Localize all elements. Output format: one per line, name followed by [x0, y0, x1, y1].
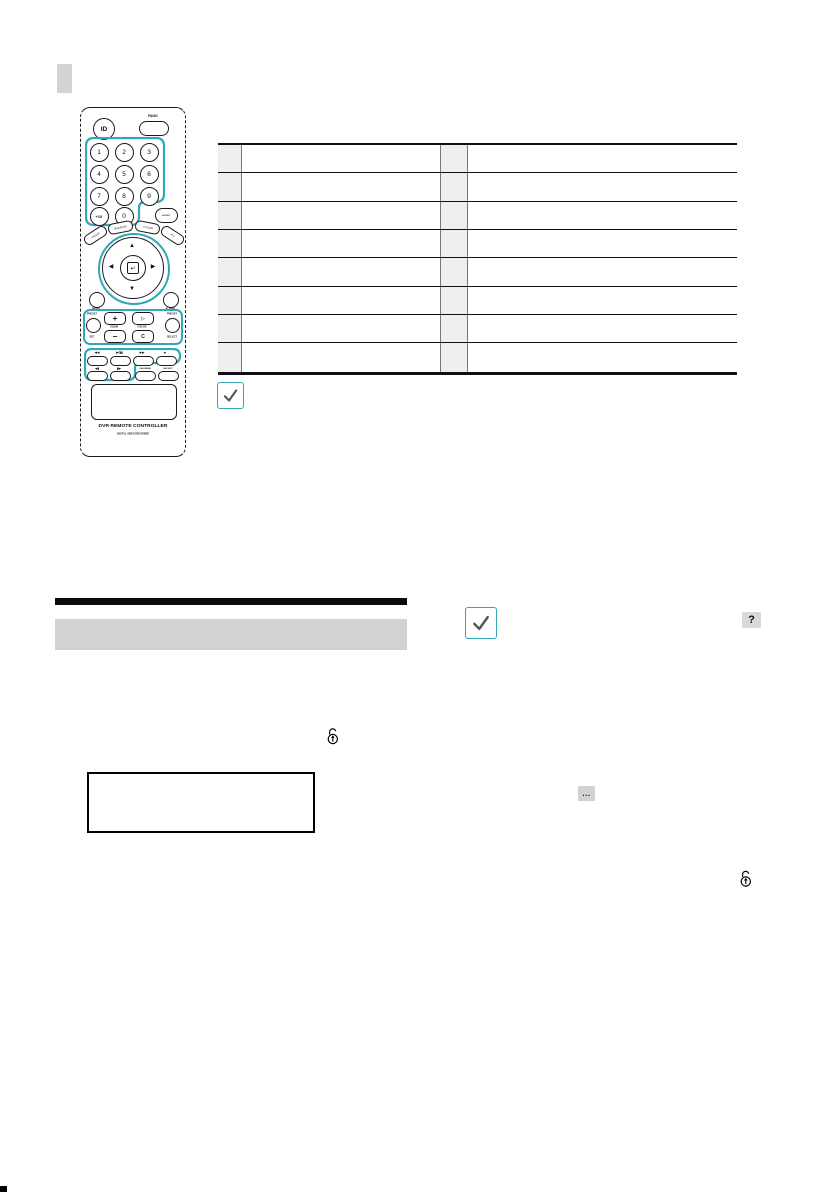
digit-9-button: 9 [140, 187, 159, 206]
digit-2-button: 2 [115, 143, 134, 162]
table-row [218, 230, 737, 258]
button-table [218, 143, 737, 375]
stop-button [156, 356, 177, 366]
step-back-label: ◀▮ [93, 368, 101, 370]
table-cell-number [440, 202, 468, 229]
table-cell-description [242, 173, 440, 200]
ptz-button: PTZ [159, 224, 186, 247]
table-row [218, 315, 737, 343]
alarm-button [163, 292, 179, 308]
digit-7-button: 7 [90, 187, 109, 206]
digit-5-button: 5 [115, 165, 134, 184]
table-cell-number [218, 230, 242, 257]
calendar-button [135, 371, 156, 381]
table-row [218, 258, 737, 286]
table-cell-description [242, 258, 440, 285]
remote-brand: DVR REMOTE CONTROLLER [102, 424, 164, 429]
calendar-label: CALENDAR [142, 368, 148, 369]
unlock-icon [739, 868, 753, 888]
play-pause-label: ▶/▮▮ [115, 352, 123, 354]
remote-brand-sub: DIGITAL VIDEO RECORDER [118, 433, 148, 435]
virtual-keyboard-box [87, 772, 315, 833]
freeze-button: FREEZE [82, 224, 109, 247]
table-cell-number [218, 173, 242, 200]
zoom-out-button: − [104, 330, 126, 343]
preset-left-label: PRESET [88, 313, 95, 315]
manual-page: ID PANIC 1 2 3 4 5 6 7 8 9 +10 0 LAYOUT … [0, 0, 840, 1192]
rewind-label: ◀◀ [93, 352, 101, 354]
table-cell-number [440, 287, 468, 314]
backup-button [158, 371, 179, 381]
dzoom-label: D.ZOOM [143, 225, 153, 229]
panic-label: PANIC [145, 114, 161, 117]
remote-lower-panel [91, 384, 177, 420]
set-label: SET [89, 336, 95, 338]
digit-4-button: 4 [90, 165, 109, 184]
fast-forward-label: ▶▶ [138, 352, 146, 354]
backup-label: BACKUP [165, 368, 171, 369]
table-cell-number [218, 258, 242, 285]
table-cell-description [468, 343, 737, 371]
preset-right-label: PRESET [168, 313, 175, 315]
step-forward-label: ▮▶ [115, 368, 123, 370]
table-cell-number [440, 145, 468, 172]
zoom-in-button: + [104, 312, 126, 325]
ptz-label: PTZ [170, 233, 175, 238]
table-cell-description [468, 145, 737, 172]
select-label: SELECT [168, 336, 176, 338]
table-row [218, 343, 737, 371]
table-cell-number [440, 343, 468, 371]
table-cell-description [468, 173, 737, 200]
layout-label: LAYOUT [162, 214, 170, 216]
table-cell-number [218, 343, 242, 371]
table-cell-number [440, 315, 468, 342]
digit-3-button: 3 [140, 143, 159, 162]
ellipsis-button-icon: ... [578, 786, 595, 801]
step-forward-button [110, 371, 131, 381]
help-icon: ? [742, 612, 761, 628]
nav-left-arrow-icon: ◀ [106, 259, 116, 275]
digit-1-button: 1 [90, 143, 109, 162]
remote-illustration: ID PANIC 1 2 3 4 5 6 7 8 9 +10 0 LAYOUT … [80, 107, 186, 457]
table-cell-number [218, 145, 242, 172]
layout-button: LAYOUT [155, 208, 178, 223]
table-cell-number [218, 202, 242, 229]
sequence-label: SEQUENCE [114, 225, 128, 230]
table-cell-number [218, 315, 242, 342]
nav-up-arrow-icon: ▲ [124, 241, 140, 251]
table-cell-number [440, 173, 468, 200]
unlock-icon [326, 726, 340, 745]
table-row [218, 173, 737, 201]
nav-right-arrow-icon: ▶ [148, 259, 158, 275]
table-cell-description [242, 202, 440, 229]
table-cell-description [468, 230, 737, 257]
enter-icon: ↵ [127, 262, 139, 274]
table-cell-description [468, 202, 737, 229]
focus-label: FOCUS [139, 326, 145, 328]
table-row [218, 145, 737, 173]
section-marker [57, 64, 72, 93]
checkmark-glyph [222, 387, 239, 404]
fast-forward-button [133, 356, 154, 366]
table-row [218, 287, 737, 315]
nav-center-button: ↵ [120, 255, 146, 281]
table-cell-description [242, 315, 440, 342]
preset-select-button [165, 318, 180, 333]
note-checkmark-icon [217, 382, 244, 409]
digit-8-button: 8 [115, 187, 134, 206]
table-row [218, 202, 737, 230]
nav-down-arrow-icon: ▼ [124, 284, 140, 294]
section-heading-bar [55, 619, 407, 650]
table-cell-description [242, 343, 440, 371]
note-checkmark-icon [465, 607, 497, 639]
play-pause-button [110, 356, 131, 366]
rewind-button [87, 356, 108, 366]
digit-6-button: 6 [140, 165, 159, 184]
focus-far-button: ▷ [132, 312, 154, 325]
table-cell-number [440, 230, 468, 257]
step-back-button [87, 371, 108, 381]
table-cell-description [468, 287, 737, 314]
table-cell-number [218, 287, 242, 314]
stop-label: ■ [161, 352, 169, 354]
plus-ten-label: +10 [96, 214, 103, 219]
table-cell-number [440, 258, 468, 285]
menu-button [89, 292, 105, 308]
zoom-label: ZOOM [111, 326, 117, 328]
table-cell-description [242, 287, 440, 314]
checkmark-glyph [471, 613, 491, 633]
plus-ten-button: +10 [90, 207, 109, 226]
preset-set-button [86, 318, 101, 333]
focus-near-button: C [132, 330, 154, 343]
section-divider-bar [55, 598, 407, 605]
panic-button [139, 121, 169, 136]
table-cell-description [468, 315, 737, 342]
footer-mark [0, 1186, 7, 1192]
freeze-label: FREEZE [91, 232, 100, 239]
table-cell-description [468, 258, 737, 285]
table-cell-description [242, 145, 440, 172]
table-cell-description [242, 230, 440, 257]
